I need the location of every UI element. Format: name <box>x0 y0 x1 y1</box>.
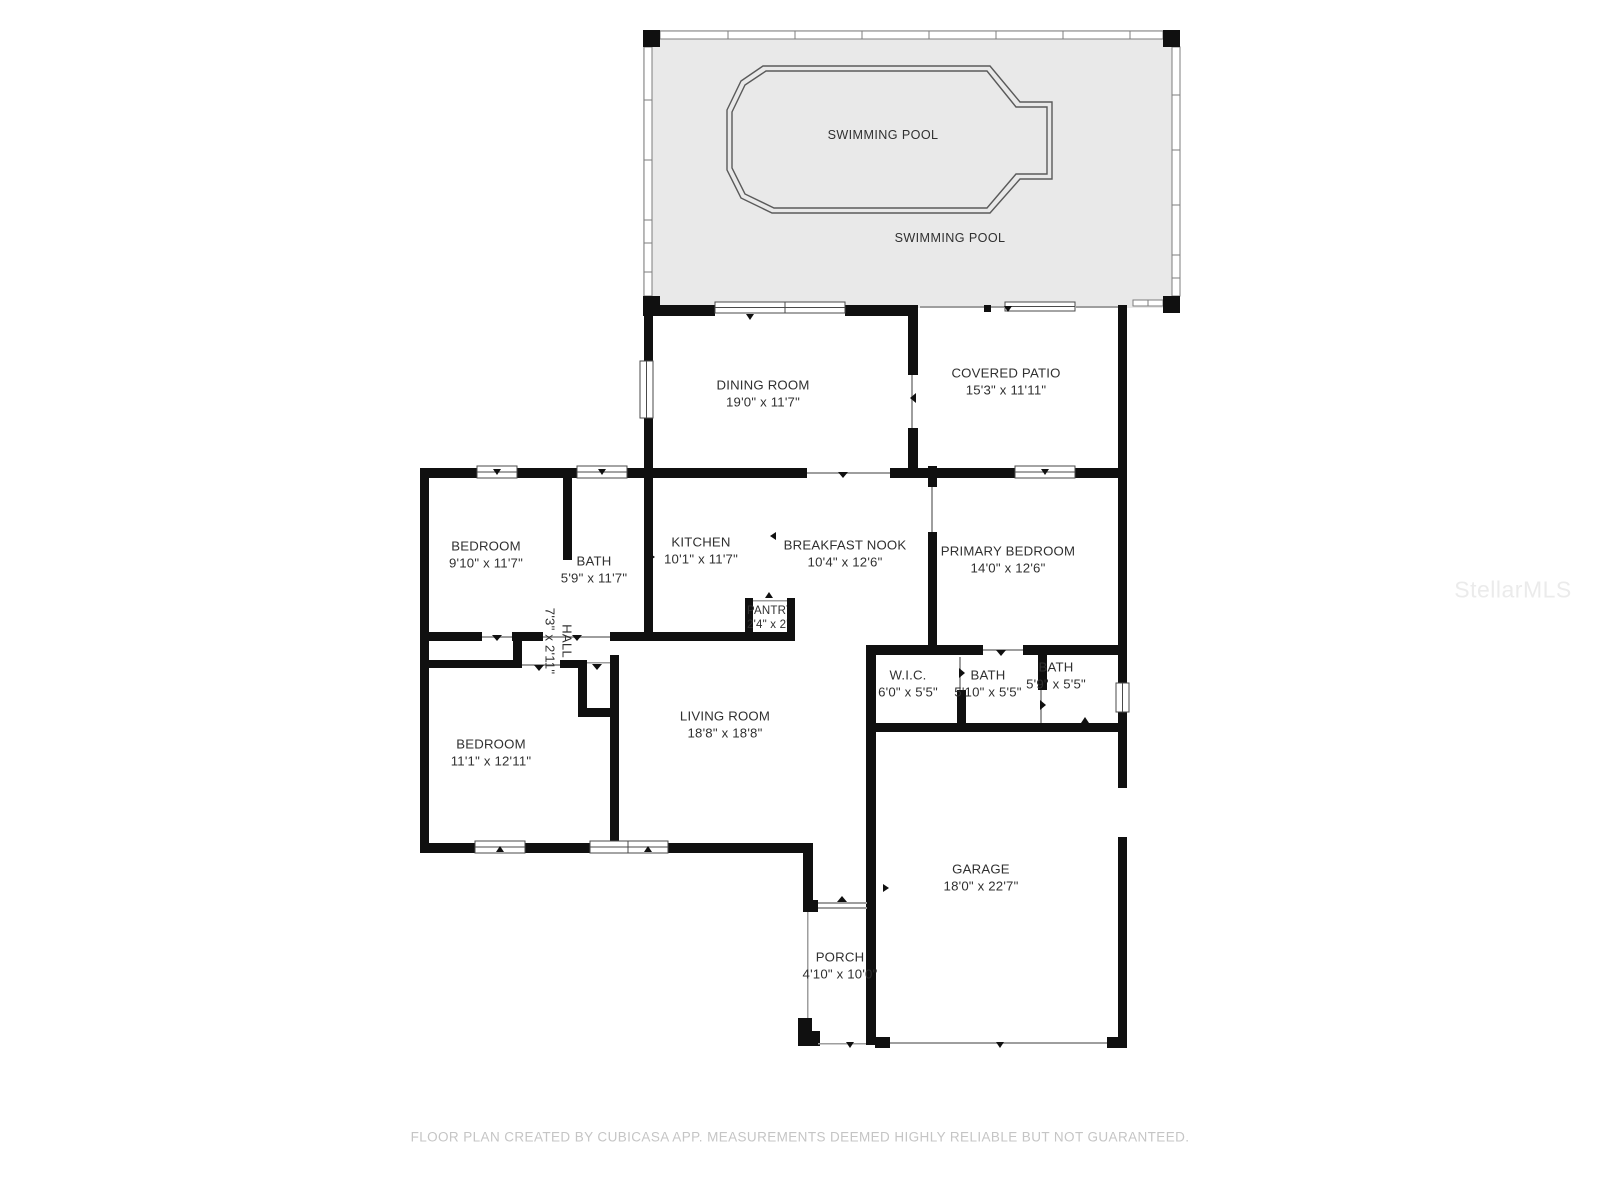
room-label-pool-deck: SWIMMING POOL <box>895 230 1006 247</box>
room-label-pantry: PANTRY2'4" x 2'0" <box>747 604 787 634</box>
room-label-primary-bedroom: PRIMARY BEDROOM14'0" x 12'6" <box>941 544 1075 577</box>
room-label-kitchen: KITCHEN10'1" x 11'7" <box>664 535 738 568</box>
screen-wall-bottom-right <box>1133 300 1163 306</box>
pool-enclosure <box>643 30 1180 313</box>
room-label-wic: W.I.C.6'0" x 5'5" <box>878 668 938 701</box>
room-label-hall: HALL7'3" x 2'11" <box>542 608 575 674</box>
floor-plan-page: SWIMMING POOL SWIMMING POOL DINING ROOM1… <box>0 0 1600 1200</box>
screen-wall-left <box>644 47 652 296</box>
room-label-bedroom-large: BEDROOM11'1" x 12'11" <box>451 737 532 770</box>
room-label-breakfast-nook: BREAKFAST NOOK10'4" x 12'6" <box>784 538 907 571</box>
room-label-dining-room: DINING ROOM19'0" x 11'7" <box>716 378 809 411</box>
room-label-living-room: LIVING ROOM18'8" x 18'8" <box>680 709 770 742</box>
room-label-bedroom-small: BEDROOM9'10" x 11'7" <box>449 539 523 572</box>
room-label-covered-patio: COVERED PATIO15'3" x 11'11" <box>951 366 1060 399</box>
room-label-garage: GARAGE18'0" x 22'7" <box>944 862 1019 895</box>
footer-disclaimer: FLOOR PLAN CREATED BY CUBICASA APP. MEAS… <box>411 1130 1190 1145</box>
room-label-porch: PORCH4'10" x 10'0" <box>803 950 878 983</box>
room-label-swimming-pool: SWIMMING POOL <box>828 127 939 144</box>
room-label-bath-primary: BATH5'10" x 5'5" <box>954 668 1021 701</box>
screen-wall-right <box>1172 47 1180 296</box>
floor-plan-drawing <box>0 0 1600 1200</box>
stellar-mls-watermark: StellarMLS <box>1454 577 1571 604</box>
room-label-bath-hall: BATH5'9" x 11'7" <box>561 554 627 587</box>
room-label-bath-guest: BATH5'9" x 5'5" <box>1026 660 1086 693</box>
screen-wall-top <box>660 31 1163 39</box>
openings-layer <box>482 306 1118 1045</box>
